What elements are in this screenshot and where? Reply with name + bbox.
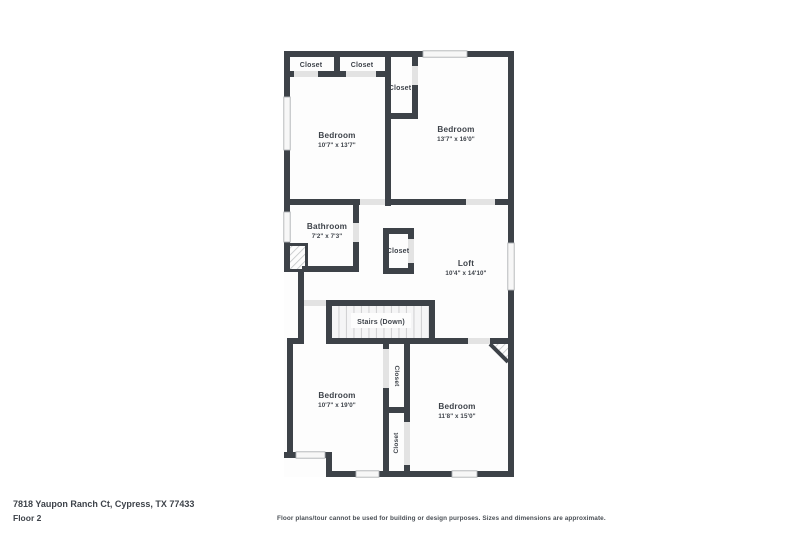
wall-bottom [326, 471, 514, 477]
label-bathroom: Bathroom [307, 222, 347, 231]
wall-bclosets-left-a [383, 344, 389, 349]
door-opening-br-closet [404, 422, 410, 465]
wall-stairs-left [326, 300, 332, 344]
wall-bclosets-right-b [404, 465, 410, 471]
window-bottom-right [452, 471, 477, 477]
wall-tr-closet-right-a [412, 51, 418, 66]
label-tr-closet: Closet [389, 85, 412, 92]
wall-divider-west [284, 199, 360, 205]
wall-closet-front-a [284, 71, 294, 77]
window-right-loft [508, 243, 514, 290]
door-opening-closet-1 [294, 71, 318, 77]
window-left-bedroom [284, 97, 290, 150]
wall-stairs-right [429, 300, 435, 344]
window-left-bathroom [284, 212, 290, 242]
label-br-closet: Closet [393, 432, 400, 454]
label-bedroom-br: Bedroom [438, 402, 475, 411]
label-loft-closet: Closet [387, 248, 410, 255]
dims-loft: 10'4" x 14'10" [445, 270, 486, 277]
label-loft: Loft [458, 259, 474, 268]
label-closet-2: Closet [351, 62, 374, 69]
dims-bedroom-bl: 10'7" x 19'0" [318, 402, 356, 409]
wall-loft-closet-right-b [408, 263, 414, 274]
door-opening-tr-closet [412, 66, 418, 85]
door-opening-bedroom-tl [360, 199, 385, 205]
window-notch [296, 452, 325, 458]
wall-tr-closet-bottom [385, 113, 418, 119]
wall-notch-vertical [326, 452, 332, 477]
label-bedroom-tl: Bedroom [318, 131, 355, 140]
floor-label: Floor 2 [13, 513, 41, 523]
wall-hall [298, 270, 304, 344]
door-opening-bathroom [353, 223, 359, 242]
window-bottom-left [356, 471, 379, 477]
door-opening-closet-2 [346, 71, 376, 77]
door-opening-bedroom-tr [466, 199, 495, 205]
disclaimer-text: Floor plans/tour cannot be used for buil… [277, 515, 606, 522]
wall-corner-piece [490, 338, 508, 344]
dims-bathroom: 7'2" x 7'3" [312, 233, 343, 240]
wall-closet-front-b [318, 71, 346, 77]
wall-loft-closet-right-a [408, 228, 414, 239]
floor-plan-canvas: Closet Closet Closet Bedroom 10'7" x 13'… [0, 0, 800, 533]
label-bl-closet: Closet [393, 365, 400, 387]
wall-bclosets-left-b [383, 388, 389, 471]
wall-left-lower [287, 344, 293, 452]
property-address: 7818 Yaupon Ranch Ct, Cypress, TX 77433 [13, 499, 194, 509]
wall-bath-bottom [302, 266, 353, 272]
dims-bedroom-br: 11'8" x 15'0" [438, 413, 475, 420]
wall-stairs-top [326, 300, 435, 306]
label-stairs: Stairs (Down) [357, 319, 405, 326]
dims-bedroom-tr: 13'7" x 16'0" [437, 136, 475, 143]
label-bedroom-bl: Bedroom [318, 391, 355, 400]
wall-bclosets-divider [383, 407, 410, 413]
label-closet-1: Closet [300, 62, 323, 69]
door-opening-bedroom-bl [304, 300, 326, 306]
door-opening-bl-closet [383, 349, 389, 388]
wall-divider-mid [391, 199, 466, 205]
wall-divider-east [495, 199, 508, 205]
wall-central [385, 51, 391, 206]
wall-bath-right-b [353, 242, 359, 272]
window-top [423, 51, 467, 57]
label-bedroom-tr: Bedroom [437, 125, 474, 134]
wall-south-row [326, 338, 468, 344]
floor-plan-page: Closet Closet Closet Bedroom 10'7" x 13'… [0, 0, 800, 533]
wall-bath-right-a [353, 205, 359, 223]
wall-top [284, 51, 514, 57]
door-opening-bedroom-br [468, 338, 490, 344]
dims-bedroom-tl: 10'7" x 13'7" [318, 142, 356, 149]
